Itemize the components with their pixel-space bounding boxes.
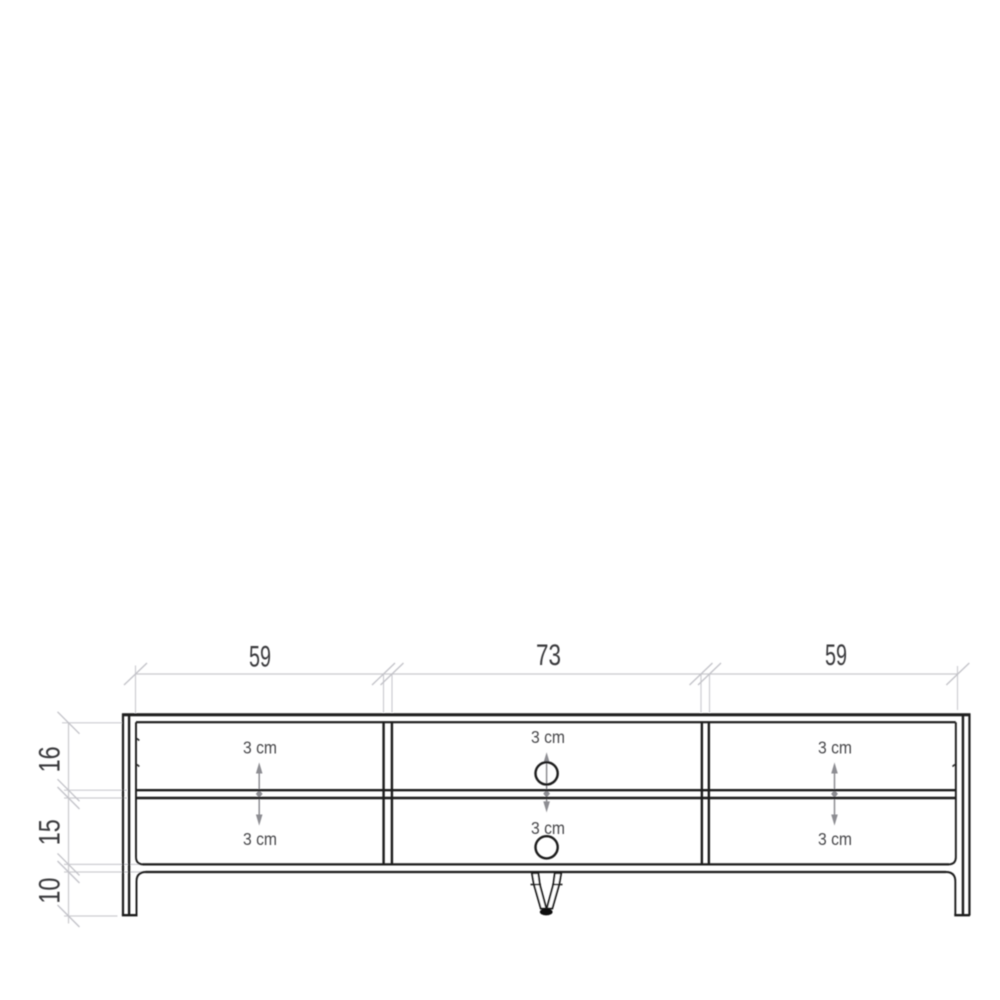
svg-text:73: 73 <box>536 639 561 672</box>
svg-text:3 cm: 3 cm <box>243 737 277 757</box>
svg-text:3 cm: 3 cm <box>818 829 852 849</box>
svg-text:59: 59 <box>249 641 271 674</box>
svg-text:3 cm: 3 cm <box>531 818 565 838</box>
svg-text:3 cm: 3 cm <box>818 737 852 757</box>
svg-text:10: 10 <box>33 878 66 904</box>
svg-text:15: 15 <box>33 819 66 845</box>
svg-text:16: 16 <box>33 746 66 772</box>
svg-text:59: 59 <box>825 639 847 672</box>
svg-text:3 cm: 3 cm <box>243 829 277 849</box>
svg-text:3 cm: 3 cm <box>531 727 565 747</box>
